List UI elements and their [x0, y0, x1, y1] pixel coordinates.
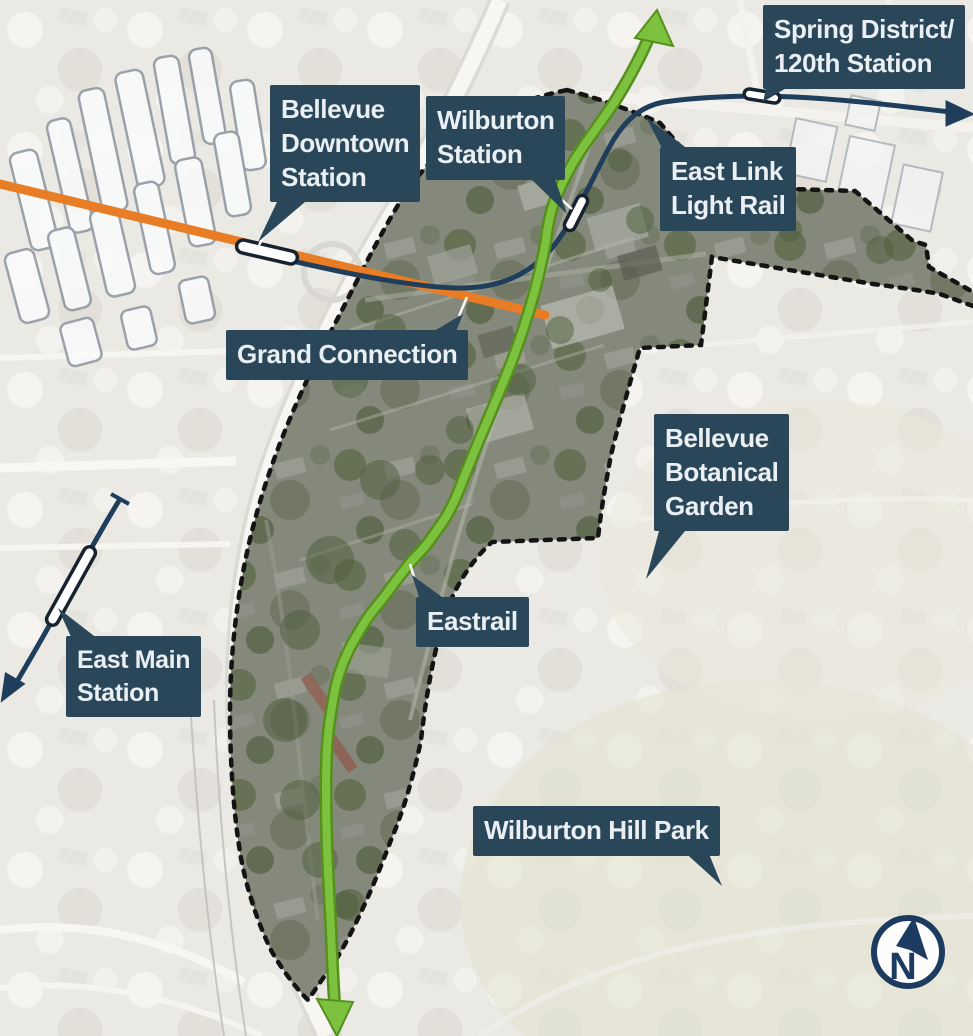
label-east-link-light-rail: East Link Light Rail — [660, 147, 796, 231]
label-bellevue-botanical-garden: Bellevue Botanical Garden — [654, 414, 789, 531]
label-spring-district-station: Spring District/ 120th Station — [763, 5, 965, 89]
label-wilburton-station: Wilburton Station — [426, 96, 565, 180]
label-wilburton-hill-park: Wilburton Hill Park — [473, 806, 720, 856]
label-east-main-station: East Main Station — [66, 636, 201, 717]
wilburton-area-map: N Bellevue Downtown Station Wilburton St… — [0, 0, 973, 1036]
label-bellevue-downtown-station: Bellevue Downtown Station — [270, 85, 420, 202]
label-grand-connection: Grand Connection — [226, 330, 468, 380]
compass-north-letter: N — [889, 946, 916, 988]
north-compass: N — [874, 917, 942, 988]
label-eastrail: Eastrail — [416, 597, 529, 647]
